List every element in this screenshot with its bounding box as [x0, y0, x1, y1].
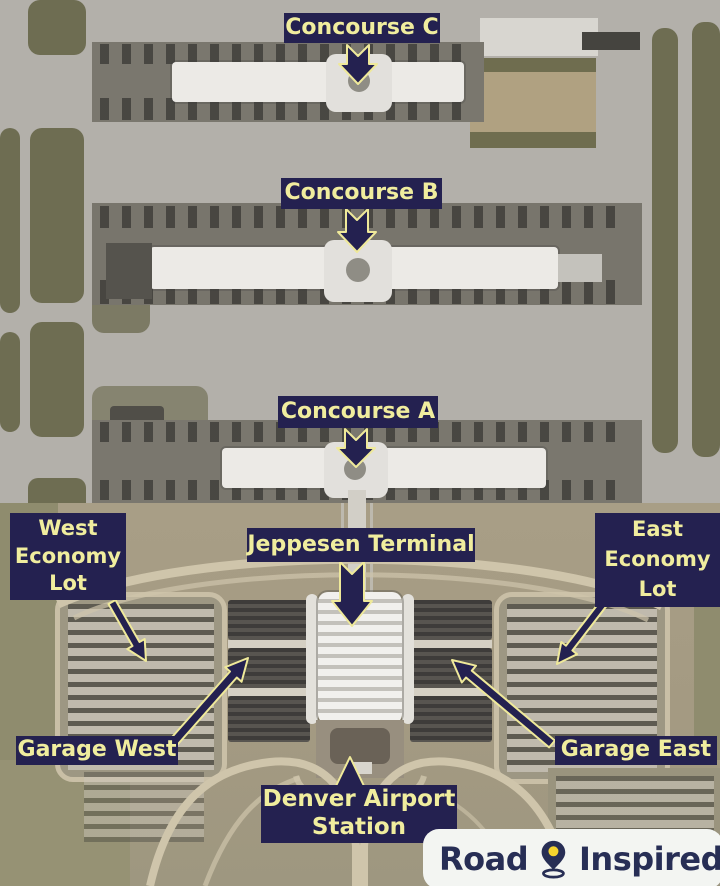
- garage-west-block: [228, 600, 310, 640]
- label-text: Garage West: [18, 737, 177, 764]
- label-text: Denver Airport: [263, 786, 456, 814]
- label-text: East: [632, 515, 683, 545]
- garage-east-block: [410, 600, 492, 640]
- concourse-c-roof: [348, 70, 370, 92]
- location-pin-icon: [538, 837, 569, 881]
- garage-gap: [228, 688, 310, 696]
- label-east-economy-lot: East Economy Lot: [595, 513, 720, 607]
- grass-island: [30, 128, 84, 303]
- label-text: Concourse A: [281, 399, 435, 426]
- brand-word-right: Inspired: [579, 840, 720, 878]
- grass-island: [28, 0, 86, 55]
- label-concourse-a: Concourse A: [278, 396, 438, 428]
- service-building: [106, 243, 152, 299]
- garage-west-block: [228, 696, 310, 742]
- grass-island: [652, 28, 678, 453]
- station-canopy: [330, 728, 390, 764]
- jeppesen-terminal-building: [318, 592, 402, 724]
- station-platform: [348, 762, 372, 774]
- satellite-map: Concourse C Concourse B Concourse A Jepp…: [0, 0, 720, 886]
- label-garage-west: Garage West: [16, 736, 178, 765]
- label-text: Garage East: [561, 737, 711, 764]
- garage-east-block: [410, 696, 492, 742]
- concourse-b-east-wing: [558, 254, 602, 282]
- grass-island: [692, 22, 720, 457]
- dirt-field: [470, 58, 596, 148]
- concourse-c-building: [172, 62, 464, 102]
- label-concourse-c: Concourse C: [284, 13, 440, 43]
- label-text: Lot: [639, 575, 677, 605]
- label-west-economy-lot: West Economy Lot: [10, 513, 126, 600]
- terminal-west-flank: [306, 594, 318, 724]
- grass-island: [0, 128, 20, 313]
- grass-island: [30, 322, 84, 437]
- label-text: Concourse B: [284, 180, 438, 207]
- label-text: Concourse C: [285, 15, 438, 42]
- aircraft-row: [100, 206, 620, 228]
- garage-east-block: [410, 648, 492, 688]
- label-text: Economy: [15, 543, 121, 571]
- brand-watermark: Road Inspired: [423, 829, 720, 886]
- label-text: Lot: [49, 570, 87, 598]
- cargo-apron: [480, 18, 598, 56]
- concourse-a-roof: [344, 458, 366, 480]
- brand-word-left: Road: [439, 840, 528, 878]
- label-text: Economy: [604, 545, 710, 575]
- cargo-building: [582, 32, 640, 50]
- label-concourse-b: Concourse B: [281, 178, 442, 209]
- aircraft-row: [100, 44, 470, 64]
- label-text: West: [38, 515, 97, 543]
- label-jeppesen-terminal: Jeppesen Terminal: [247, 528, 475, 562]
- garage-gap: [228, 640, 310, 648]
- garage-gap: [410, 688, 492, 696]
- garage-gap: [410, 640, 492, 648]
- label-text: Station: [312, 814, 406, 842]
- concourse-b-roof: [346, 258, 370, 282]
- terminal-east-flank: [402, 594, 414, 724]
- grass-island: [0, 332, 20, 432]
- garage-west-block: [228, 648, 310, 688]
- label-garage-east: Garage East: [555, 736, 717, 765]
- label-text: Jeppesen Terminal: [247, 532, 474, 559]
- parking-rows: [84, 772, 204, 842]
